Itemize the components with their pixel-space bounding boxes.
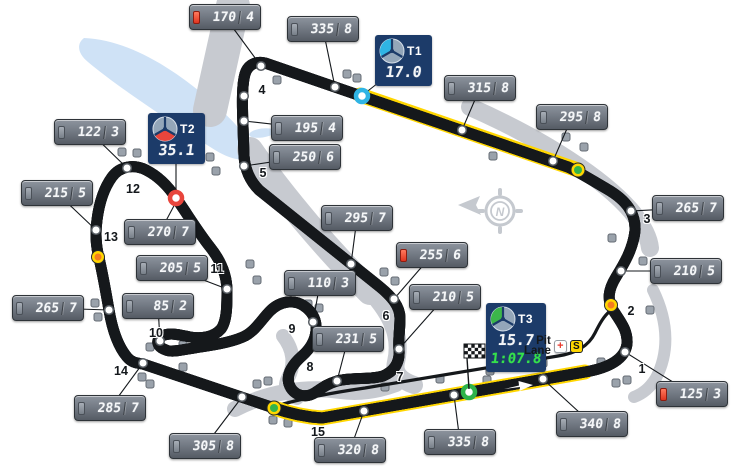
marshal-post: [253, 276, 261, 284]
marshal-post: [489, 152, 497, 160]
marshal-post: [269, 416, 277, 424]
badge-speed-value: 215: [34, 187, 73, 200]
marshal-post: [623, 376, 631, 384]
compass-letter: N: [496, 205, 505, 219]
marshal-post: [353, 74, 361, 82]
badge-gear-value: 8: [337, 23, 356, 36]
badge-brake-cap: [288, 277, 295, 290]
badge-brake-cap: [428, 436, 435, 449]
badge-speed-value: 255: [409, 249, 448, 262]
marshal-post: [206, 153, 214, 161]
badge-speed-value: 250: [282, 151, 321, 164]
track-spot-marker-core: [95, 254, 102, 261]
badge-gear-value: 3: [104, 126, 123, 139]
badge-speed-value: 195: [284, 122, 323, 135]
badge-speed-value: 295: [549, 111, 588, 124]
sector-label: T1: [407, 44, 422, 58]
badge-speed-value: 270: [137, 226, 176, 239]
badge-gear-value: 8: [586, 111, 605, 124]
turn-number-label: 15: [311, 425, 325, 439]
steering-wheel-icon: [490, 306, 516, 332]
speed-badge: 335 8: [424, 429, 496, 455]
speed-point: [395, 345, 404, 354]
medical-cross-icon: +: [554, 340, 567, 353]
badge-brake-cap: [128, 226, 135, 239]
badge-brake-cap: [560, 418, 567, 431]
marshal-post: [646, 306, 654, 314]
turn-number-label: 10: [149, 326, 163, 340]
speed-badge: 340 8: [556, 411, 628, 437]
badge-gear-value: 6: [319, 151, 338, 164]
speed-badge: 295 8: [536, 104, 608, 130]
speed-badge: 320 8: [314, 437, 386, 463]
speed-point: [627, 207, 636, 216]
speed-point: [390, 295, 399, 304]
sector-marker-t2: T2 35.1: [148, 113, 205, 164]
badge-brake-cap: [140, 262, 147, 275]
marshal-post: [391, 277, 399, 285]
badge-gear-value: 8: [219, 440, 238, 453]
speed-badge: 305 8: [169, 433, 241, 459]
flag-cell: [478, 345, 481, 348]
badge-speed-value: 295: [334, 212, 373, 225]
badge-brake-cap: [325, 212, 332, 225]
badge-brake-cap: [291, 23, 298, 36]
badge-gear-value: 5: [362, 333, 381, 346]
turn-number-label: 14: [114, 364, 128, 378]
sector-time: 35.1: [151, 143, 202, 158]
badge-gear-value: 3: [706, 388, 725, 401]
badge-speed-value: 125: [669, 388, 708, 401]
badge-brake-cap: [78, 402, 85, 415]
speed-badge: 265 7: [12, 295, 84, 321]
badge-brake-cap: [318, 444, 325, 457]
speed-point: [123, 164, 132, 173]
badge-brake-cap: [193, 11, 200, 24]
badge-brake-cap: [656, 202, 663, 215]
flag-cell: [465, 345, 468, 348]
badge-gear-value: 5: [186, 262, 205, 275]
speed-badge: 295 7: [321, 205, 393, 231]
speed-badge: 250 6: [269, 144, 341, 170]
speed-point: [105, 306, 114, 315]
marshal-post: [246, 260, 254, 268]
speed-point: [240, 117, 249, 126]
turn-number-label: 8: [307, 360, 314, 374]
flag-cell: [482, 348, 485, 351]
badge-speed-value: 205: [149, 262, 188, 275]
speed-badge: 170 4: [189, 4, 261, 30]
speed-badge: 205 5: [136, 255, 208, 281]
marshal-post: [343, 70, 351, 78]
speed-point: [331, 83, 340, 92]
marshal-post: [608, 234, 616, 242]
badge-speed-value: 210: [422, 291, 461, 304]
badge-speed-value: 335: [437, 436, 476, 449]
speed-badge: 210 5: [650, 258, 722, 284]
badge-gear-value: 6: [446, 249, 465, 262]
speed-badge: 210 5: [409, 284, 481, 310]
badge-speed-value: 170: [202, 11, 241, 24]
badge-brake-cap: [448, 82, 455, 95]
speed-point: [309, 318, 318, 327]
sector-time: 17.0: [378, 65, 429, 80]
badge-brake-cap: [413, 291, 420, 304]
pit-lane-label: Pit Lane: [524, 336, 551, 356]
badge-speed-value: 85: [135, 300, 174, 313]
zone-start-light-core: [574, 166, 582, 174]
badge-brake-cap: [660, 388, 667, 401]
speed-point: [92, 226, 101, 235]
badge-speed-value: 210: [663, 265, 702, 278]
badge-brake-cap: [25, 187, 32, 200]
flag-cell: [471, 351, 474, 354]
badge-gear-value: 8: [474, 436, 493, 449]
marshal-post: [179, 363, 187, 371]
badge-speed-value: 335: [300, 23, 339, 36]
marshal-post: [273, 76, 281, 84]
badge-gear-value: 5: [71, 187, 90, 200]
pit-lane-label-group: Pit Lane + S: [524, 336, 583, 356]
turn-number-label: 4: [259, 83, 266, 97]
badge-gear-value: 8: [606, 418, 625, 431]
compass-icon: N: [458, 190, 521, 232]
badge-speed-value: 305: [182, 440, 221, 453]
flag-cell: [482, 354, 485, 357]
badge-gear-value: 2: [172, 300, 191, 313]
flag-cell: [468, 354, 471, 357]
badge-gear-value: 4: [239, 11, 258, 24]
turn-number-label: 11: [210, 262, 223, 276]
badge-speed-value: 231: [325, 333, 364, 346]
badge-speed-value: 265: [665, 202, 704, 215]
checkered-flag-icon: [464, 344, 485, 389]
steering-wheel-icon: [379, 38, 405, 64]
circuit-map: N 170 4 335 8 315 8 295 8 265 7: [0, 0, 736, 476]
badge-gear-value: 7: [174, 226, 193, 239]
speed-badge: 85 2: [122, 293, 194, 319]
marshal-post: [118, 148, 126, 156]
marshal-post: [380, 268, 388, 276]
speed-point: [539, 375, 548, 384]
turn-number-label: 5: [260, 166, 267, 180]
badge-speed-value: 320: [327, 444, 366, 457]
speed-badge: 255 6: [396, 242, 468, 268]
turn-number-label: 7: [397, 370, 404, 384]
speed-badge: 231 5: [312, 326, 384, 352]
marshal-post: [639, 257, 647, 265]
speed-badge: 125 3: [656, 381, 728, 407]
badge-brake-cap: [173, 440, 180, 453]
speed-badge: 110 3: [284, 270, 356, 296]
marshal-post: [580, 143, 588, 151]
flag-cell: [475, 354, 478, 357]
badge-brake-cap: [275, 122, 282, 135]
speed-point: [139, 359, 148, 368]
marshal-post: [146, 380, 154, 388]
badge-gear-value: 3: [334, 277, 353, 290]
speed-point: [240, 162, 249, 171]
turn-number-label: 6: [383, 309, 390, 323]
badge-gear-value: 7: [371, 212, 390, 225]
badge-speed-value: 110: [297, 277, 336, 290]
turn-number-label: 9: [289, 322, 296, 336]
badge-gear-value: 8: [494, 82, 513, 95]
turn-number-label: 13: [104, 230, 118, 244]
badge-speed-value: 340: [569, 418, 608, 431]
speed-point: [360, 407, 369, 416]
badge-brake-cap: [16, 302, 23, 315]
speed-point: [450, 391, 459, 400]
badge-gear-value: 7: [62, 302, 81, 315]
marshal-post: [264, 377, 272, 385]
pit-label-line2: Lane: [524, 346, 551, 356]
badge-speed-value: 285: [87, 402, 126, 415]
marshal-post: [91, 299, 99, 307]
flag-cell: [475, 348, 478, 351]
sector-label: T3: [518, 312, 533, 326]
speed-badge: 122 3: [54, 119, 126, 145]
badge-gear-value: 7: [702, 202, 721, 215]
badge-brake-cap: [654, 265, 661, 278]
badge-gear-value: 5: [459, 291, 478, 304]
sector-boundary-ring: [356, 90, 368, 102]
badge-brake-cap: [400, 249, 407, 262]
turn-number-label: 3: [644, 212, 651, 226]
badge-gear-value: 4: [321, 122, 340, 135]
speed-badge: 315 8: [444, 75, 516, 101]
badge-gear-value: 8: [364, 444, 383, 457]
badge-brake-cap: [316, 333, 323, 346]
badge-gear-value: 7: [124, 402, 143, 415]
speed-point: [617, 267, 626, 276]
badge-speed-value: 265: [25, 302, 64, 315]
marshal-post: [612, 379, 620, 387]
badge-brake-cap: [58, 126, 65, 139]
sector-marker-t1: T1 17.0: [375, 35, 432, 86]
track-spot-marker-core: [608, 302, 615, 309]
speed-badge: 195 4: [271, 115, 343, 141]
flag-cell: [478, 351, 481, 354]
sector-label: T2: [180, 122, 195, 136]
speed-badge: 270 7: [124, 219, 196, 245]
badge-brake-cap: [540, 111, 547, 124]
speed-point: [621, 348, 630, 357]
pit-speed-limit-icon: S: [570, 340, 583, 353]
marshal-post: [253, 380, 261, 388]
badge-gear-value: 5: [700, 265, 719, 278]
badge-brake-cap: [273, 151, 280, 164]
badge-speed-value: 122: [67, 126, 106, 139]
marshal-post: [133, 149, 141, 157]
speed-point: [333, 377, 342, 386]
steering-wheel-icon: [152, 116, 178, 142]
speed-badge: 335 8: [287, 16, 359, 42]
speed-point: [238, 393, 247, 402]
turn-number-label: 12: [126, 182, 140, 196]
badge-brake-cap: [126, 300, 133, 313]
speed-point: [223, 285, 232, 294]
track-point: [240, 92, 249, 101]
speed-point: [257, 62, 266, 71]
speed-badge: 265 7: [652, 195, 724, 221]
marshal-post: [138, 373, 146, 381]
zone-start-light-core: [270, 404, 278, 412]
speed-badge: 285 7: [74, 395, 146, 421]
marshal-post: [94, 313, 102, 321]
speed-point: [458, 126, 467, 135]
speed-badge: 215 5: [21, 180, 93, 206]
badge-speed-value: 315: [457, 82, 496, 95]
turn-number-label: 2: [628, 304, 635, 318]
flag-cell: [468, 348, 471, 351]
speed-point: [549, 157, 558, 166]
flag-cell: [471, 345, 474, 348]
sector-boundary-ring: [170, 192, 182, 204]
marshal-post: [212, 167, 220, 175]
speed-point: [347, 260, 356, 269]
flag-cell: [465, 351, 468, 354]
turn-number-label: 1: [639, 362, 646, 376]
